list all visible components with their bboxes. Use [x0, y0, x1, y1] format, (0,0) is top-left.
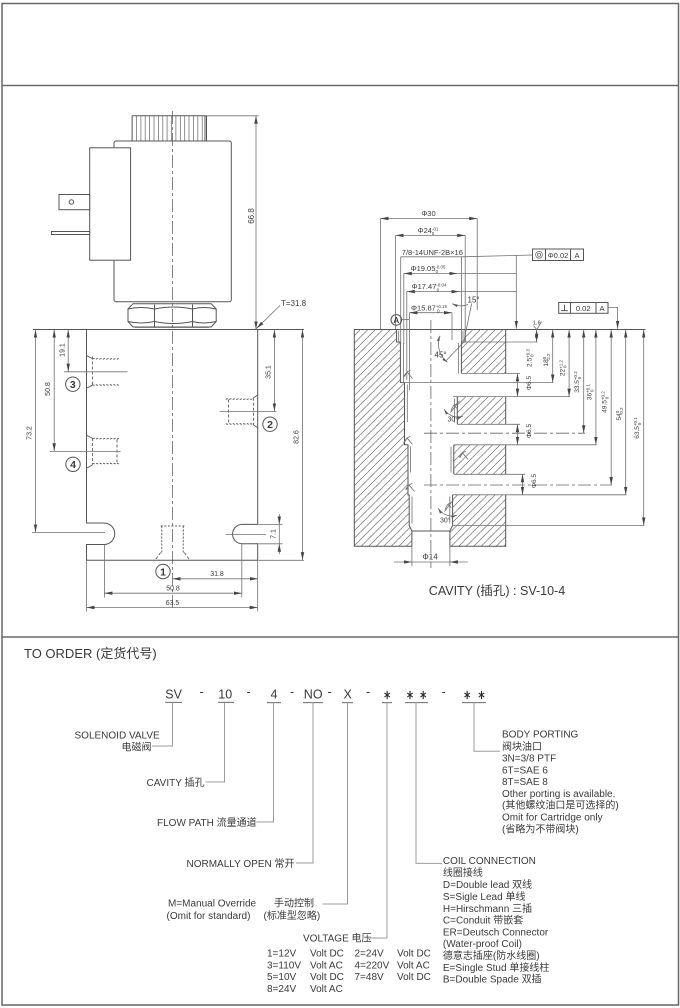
svg-text:63.5: 63.5 [166, 600, 180, 607]
svg-text:(Omit for standard): (Omit for standard) [167, 911, 251, 922]
svg-text:6T=SAE 6: 6T=SAE 6 [502, 765, 548, 776]
svg-text:73.2: 73.2 [27, 426, 34, 440]
svg-text:(标准型忽略): (标准型忽略) [264, 909, 321, 922]
svg-text:10: 10 [218, 688, 232, 702]
svg-text:3=110V: 3=110V [267, 960, 301, 971]
svg-text:手动控制: 手动控制 [274, 897, 314, 910]
svg-text:-: - [442, 685, 446, 699]
svg-text:-: - [247, 685, 251, 699]
svg-text:4=220V: 4=220V [355, 960, 390, 971]
svg-text:CAVITY 插孔: CAVITY 插孔 [147, 776, 205, 789]
svg-text:(省略为不带阀块): (省略为不带阀块) [502, 822, 579, 835]
svg-text:Volt AC: Volt AC [310, 960, 343, 971]
svg-text:15°: 15° [468, 296, 480, 305]
svg-text:30°: 30° [440, 517, 451, 525]
svg-text:X: X [344, 688, 353, 702]
svg-text:(其他螺纹油口是可选择的): (其他螺纹油口是可选择的) [502, 799, 619, 812]
svg-text:3: 3 [70, 379, 76, 391]
svg-text:Φ17.47-0.040: Φ17.47-0.040 [412, 282, 447, 292]
svg-text:66.8: 66.8 [247, 208, 256, 224]
svg-text:FLOW PATH 流量通道: FLOW PATH 流量通道 [157, 816, 257, 829]
svg-text:1.6: 1.6 [533, 321, 541, 327]
svg-text:-: - [290, 685, 294, 699]
svg-text:Φ6.5: Φ6.5 [526, 424, 533, 439]
svg-text:B=Double Spade 双插: B=Double Spade 双插 [443, 973, 542, 986]
svg-text:Φ15.87+0.150: Φ15.87+0.150 [411, 303, 447, 313]
svg-text:ER=Deutsch Connector: ER=Deutsch Connector [443, 927, 549, 938]
svg-text:Φ30: Φ30 [421, 209, 435, 218]
svg-text:33.5+0.20: 33.5+0.20 [573, 371, 582, 393]
svg-text:NO: NO [304, 688, 323, 702]
svg-text:36+0.10: 36+0.10 [586, 383, 595, 400]
svg-text:4: 4 [271, 688, 278, 702]
svg-text:Volt DC: Volt DC [310, 949, 344, 960]
svg-text:35.1: 35.1 [266, 365, 273, 379]
svg-text:Omit for Cartridge only: Omit for Cartridge only [502, 813, 603, 824]
svg-text:Φ0.02: Φ0.02 [548, 251, 569, 260]
svg-text:7/8-14UNF-2B×16: 7/8-14UNF-2B×16 [402, 248, 463, 257]
svg-text:D=Double lead 双线: D=Double lead 双线 [443, 878, 532, 891]
svg-text:Other porting is available.: Other porting is available. [502, 789, 615, 800]
svg-text:Volt DC: Volt DC [397, 949, 431, 960]
svg-text:5=10V: 5=10V [267, 972, 297, 983]
svg-text:Volt DC: Volt DC [310, 972, 344, 983]
svg-text:31.8: 31.8 [210, 571, 224, 578]
svg-text:2: 2 [267, 419, 273, 431]
svg-text:8T=SAE 8: 8T=SAE 8 [502, 777, 548, 788]
svg-text:-: - [200, 685, 204, 699]
svg-text:19.1: 19.1 [60, 343, 67, 357]
svg-text:8=24V: 8=24V [267, 984, 297, 995]
svg-text:Φ6.5: Φ6.5 [526, 376, 533, 391]
svg-text:E=Single Stud 单接线柱: E=Single Stud 单接线柱 [443, 961, 549, 974]
svg-text:线圈接线: 线圈接线 [443, 866, 483, 879]
svg-text:德意志插座(防水线圈): 德意志插座(防水线圈) [443, 949, 540, 962]
svg-text:-: - [366, 685, 370, 699]
svg-text:1=12V: 1=12V [267, 949, 297, 960]
svg-text:Φ19.05-0.050: Φ19.05-0.050 [411, 264, 446, 274]
svg-text:50.8: 50.8 [166, 586, 180, 593]
svg-text:电磁阀: 电磁阀 [122, 741, 152, 754]
svg-text:22+1.20: 22+1.20 [559, 359, 568, 376]
svg-text:2=24V: 2=24V [355, 949, 385, 960]
svg-text:Φ14: Φ14 [422, 553, 438, 562]
svg-text:0.02: 0.02 [576, 304, 591, 313]
svg-text:50.8: 50.8 [45, 382, 52, 396]
svg-text:CAVITY (插孔) : SV-10-4: CAVITY (插孔) : SV-10-4 [429, 584, 565, 598]
svg-text:45°: 45° [435, 351, 447, 360]
svg-text:C=Conduit 带嵌套: C=Conduit 带嵌套 [443, 914, 523, 927]
svg-text:阀块油口: 阀块油口 [502, 740, 542, 753]
svg-text:Volt DC: Volt DC [397, 972, 431, 983]
svg-text:1: 1 [160, 567, 166, 579]
svg-text:M=Manual Override: M=Manual Override [168, 899, 257, 910]
svg-text:82.6: 82.6 [294, 430, 301, 444]
svg-text:Φ6.5: Φ6.5 [531, 474, 538, 489]
svg-text:Volt AC: Volt AC [310, 984, 343, 995]
svg-text:7.1: 7.1 [271, 529, 278, 539]
svg-text:VOLTAGE 电压: VOLTAGE 电压 [303, 932, 372, 945]
svg-text:540-0.2: 540-0.2 [615, 407, 624, 421]
svg-text:A: A [574, 251, 579, 260]
svg-text:COIL CONNECTION: COIL CONNECTION [443, 856, 536, 867]
svg-text:Volt AC: Volt AC [397, 960, 430, 971]
svg-text:SV: SV [165, 688, 182, 702]
svg-text:49.5+0.20: 49.5+0.20 [601, 391, 610, 413]
svg-text:4: 4 [70, 459, 76, 471]
svg-text:A: A [393, 316, 399, 325]
svg-text:Φ24-010: Φ24-010 [418, 226, 439, 236]
svg-text:(Water-proof Coil): (Water-proof Coil) [443, 939, 522, 950]
svg-text:BODY PORTING: BODY PORTING [502, 730, 579, 741]
svg-text:A: A [599, 304, 604, 313]
svg-text:2.5+0.30: 2.5+0.30 [526, 349, 535, 367]
svg-text:NORMALLY OPEN 常开: NORMALLY OPEN 常开 [187, 857, 295, 870]
svg-text:3N=3/8 PTF: 3N=3/8 PTF [502, 754, 556, 765]
svg-text:7=48V: 7=48V [355, 972, 385, 983]
svg-text:S=Sigle Lead 单线: S=Sigle Lead 单线 [443, 890, 526, 903]
svg-text:SOLENOID VALVE: SOLENOID VALVE [75, 731, 161, 742]
svg-text:-: - [328, 685, 332, 699]
svg-text:H=Hirschmann 三插: H=Hirschmann 三插 [443, 902, 532, 915]
svg-text:180-2.2: 180-2.2 [542, 353, 551, 367]
svg-text:63.5+0.10: 63.5+0.10 [633, 417, 642, 439]
svg-text:TO ORDER (定货代号): TO ORDER (定货代号) [24, 646, 157, 661]
svg-text:T=31.8: T=31.8 [281, 299, 307, 308]
